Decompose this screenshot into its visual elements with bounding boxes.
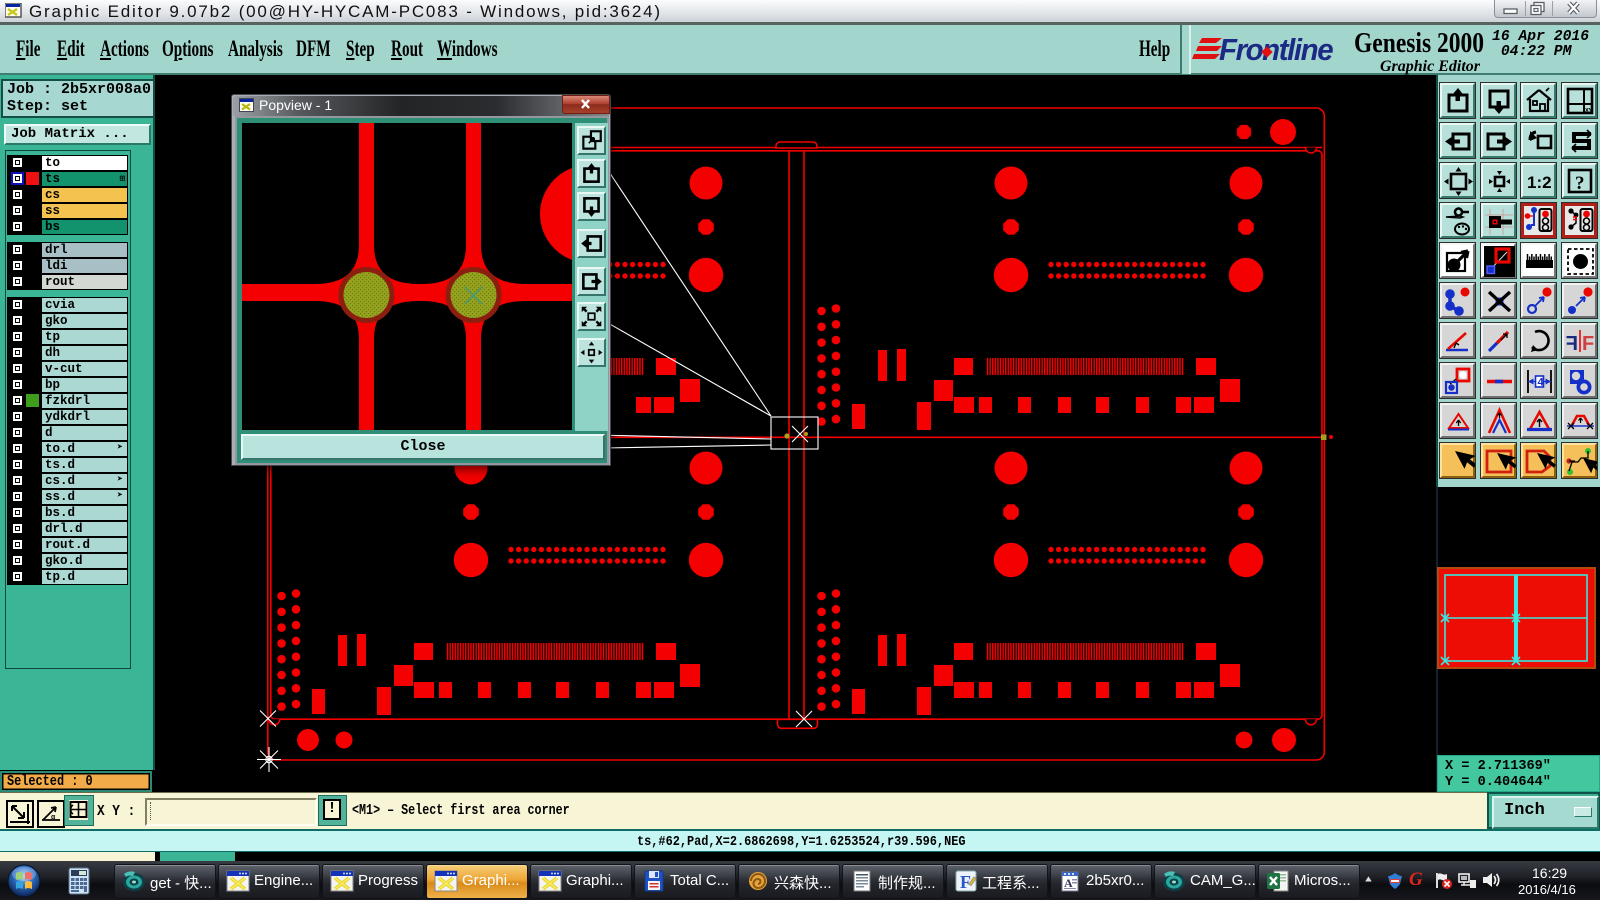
svg-text:4: 4 [1538, 377, 1545, 389]
svg-text:F: F [1565, 333, 1577, 355]
svg-text:F: F [960, 872, 971, 892]
svg-text:F: F [1582, 333, 1594, 355]
svg-text:?: ? [1575, 173, 1585, 194]
svg-text:1:2: 1:2 [1527, 173, 1552, 192]
svg-text:xy: xy [1585, 107, 1593, 114]
svg-text:α: α [51, 814, 56, 821]
svg-text:A: A [1064, 876, 1073, 890]
